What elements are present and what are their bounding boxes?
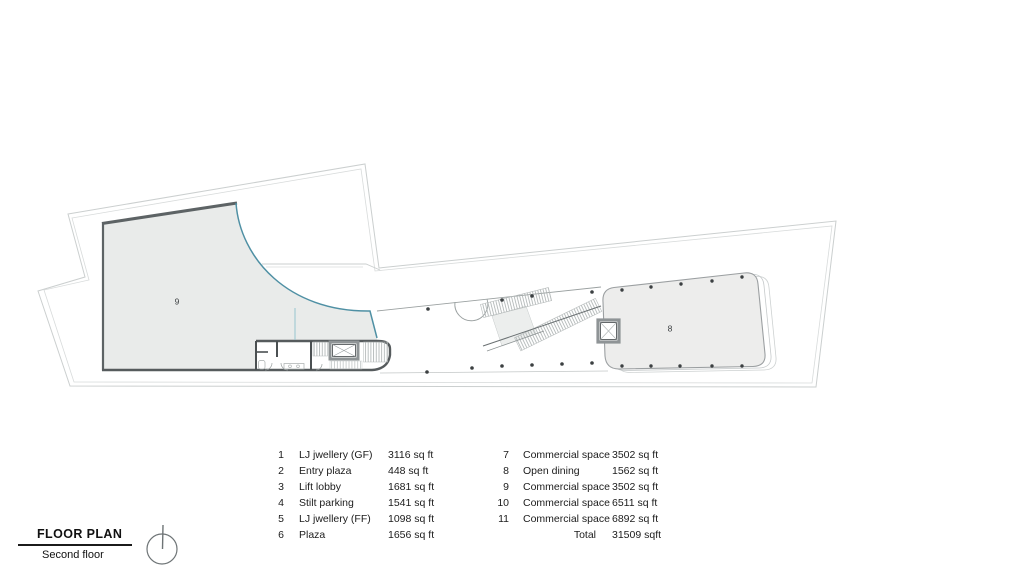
sheet-title: FLOOR PLAN — [37, 527, 148, 541]
legend-row: 11 Commercial space 6892 sq ft — [496, 511, 697, 527]
washbasin-counter — [284, 364, 304, 370]
legend-area: 1562 sq ft — [612, 463, 697, 479]
legend-area: 1098 sq ft — [388, 511, 468, 527]
legend-row: 4 Stilt parking 1541 sq ft — [275, 495, 468, 511]
legend-name: LJ jwellery (GF) — [284, 447, 388, 463]
legend-name: Plaza — [284, 527, 388, 543]
lift-symbol — [598, 320, 619, 342]
legend-area: 1681 sq ft — [388, 479, 468, 495]
legend-total-row: Total 31509 sqft — [496, 527, 697, 543]
open-dining-block: 8 — [598, 273, 776, 373]
wc-fixture — [259, 361, 266, 370]
legend-row: 7 Commercial space 3502 sq ft — [496, 447, 697, 463]
legend-left-column: 1 LJ jwellery (GF) 3116 sq ft 2 Entry pl… — [275, 447, 468, 543]
legend-number: 5 — [275, 511, 284, 527]
legend-row: 8 Open dining 1562 sq ft — [496, 463, 697, 479]
legend-total-value: 31509 sqft — [612, 527, 697, 543]
legend-name: Stilt parking — [284, 495, 388, 511]
legend-row: 5 LJ jwellery (FF) 1098 sq ft — [275, 511, 468, 527]
main-building: 9 — [102, 203, 390, 371]
legend-area: 1656 sq ft — [388, 527, 468, 543]
plaza-deck — [377, 287, 608, 374]
legend-number: 10 — [496, 495, 509, 511]
legend-area: 448 sq ft — [388, 463, 468, 479]
legend-number: 7 — [496, 447, 509, 463]
lift-symbol — [330, 342, 358, 359]
legend-name: Commercial space — [509, 511, 612, 527]
legend-number — [496, 527, 509, 543]
legend-area: 3502 sq ft — [612, 447, 697, 463]
legend-total-label: Total — [509, 527, 612, 543]
legend-number: 9 — [496, 479, 509, 495]
legend-row: 10 Commercial space 6511 sq ft — [496, 495, 697, 511]
legend-area: 6511 sq ft — [612, 495, 697, 511]
legend-area: 3502 sq ft — [612, 479, 697, 495]
legend-number: 3 — [275, 479, 284, 495]
legend-number: 2 — [275, 463, 284, 479]
service-core — [256, 341, 388, 370]
legend-number: 8 — [496, 463, 509, 479]
legend-area: 1541 sq ft — [388, 495, 468, 511]
legend-area: 6892 sq ft — [612, 511, 697, 527]
deck-edge-lower — [380, 371, 608, 373]
title-block: FLOOR PLAN Second floor — [18, 527, 148, 561]
legend-area: 3116 sq ft — [388, 447, 468, 463]
legend-name: Entry plaza — [284, 463, 388, 479]
legend-number: 6 — [275, 527, 284, 543]
legend-name: Commercial space — [509, 447, 612, 463]
legend-row: 3 Lift lobby 1681 sq ft — [275, 479, 468, 495]
legend-row: 9 Commercial space 3502 sq ft — [496, 479, 697, 495]
legend-name: Commercial space — [509, 479, 612, 495]
sheet-subtitle: Second floor — [42, 549, 148, 561]
legend-right-column: 7 Commercial space 3502 sq ft 8 Open din… — [496, 447, 697, 543]
legend-row: 1 LJ jwellery (GF) 3116 sq ft — [275, 447, 468, 463]
room-8 — [603, 273, 765, 369]
legend-name: Commercial space — [509, 495, 612, 511]
north-arrow-icon — [147, 525, 177, 564]
room-9-label: 9 — [175, 296, 180, 306]
legend-row: 2 Entry plaza 448 sq ft — [275, 463, 468, 479]
title-underline — [18, 544, 132, 546]
legend-name: Lift lobby — [284, 479, 388, 495]
floor-plan-sheet: 9 — [0, 0, 1024, 576]
legend-number: 11 — [496, 511, 509, 527]
legend-name: LJ jwellery (FF) — [284, 511, 388, 527]
legend-row: 6 Plaza 1656 sq ft — [275, 527, 468, 543]
legend-number: 4 — [275, 495, 284, 511]
legend-name: Open dining — [509, 463, 612, 479]
room-8-label: 8 — [668, 323, 673, 333]
stairs-symbol — [480, 287, 601, 351]
legend-number: 1 — [275, 447, 284, 463]
